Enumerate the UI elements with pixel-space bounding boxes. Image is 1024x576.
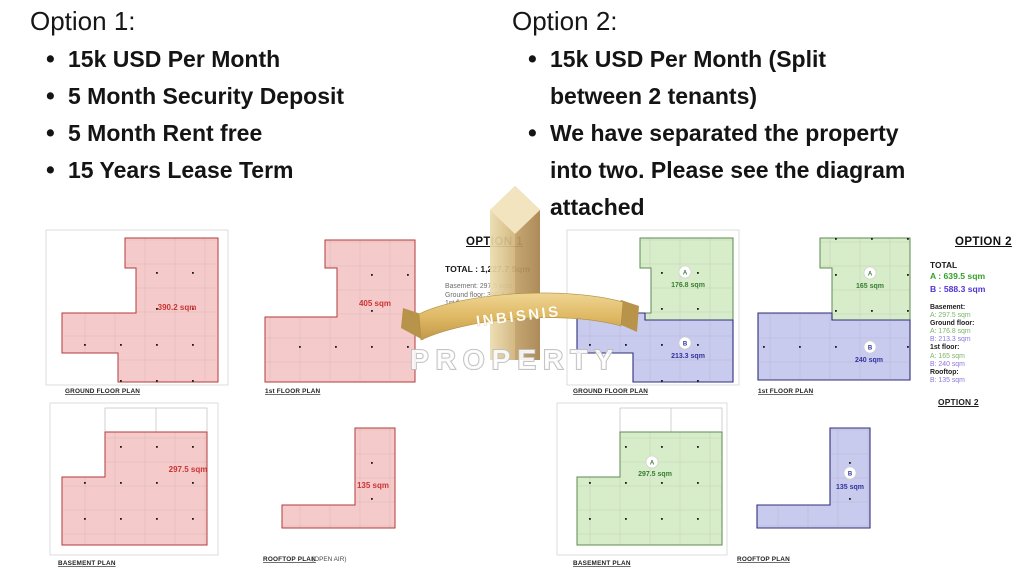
summary-line: A: 165 sqm bbox=[930, 353, 1024, 361]
bullet-dot: • bbox=[46, 115, 68, 152]
column-dots bbox=[758, 238, 910, 380]
bullet-text: 15 Years Lease Term bbox=[68, 152, 294, 189]
summary-option2-lines: Basement: A: 297.5 sqm Ground floor: A: … bbox=[930, 304, 1024, 385]
option2-footer-label: OPTION 2 bbox=[938, 397, 979, 407]
summary-line: 1st floor: bbox=[930, 344, 1024, 352]
bullet-item: • 5 Month Rent free bbox=[46, 115, 344, 152]
unit-letter: B bbox=[683, 341, 688, 347]
bullet-dot: • bbox=[528, 41, 550, 78]
plan-caption: GROUND FLOOR PLAN bbox=[573, 388, 648, 395]
plan-caption: ROOFTOP PLAN bbox=[263, 556, 316, 563]
column-dots bbox=[577, 432, 722, 545]
plan-option2-rooftop: B 135 sqm ROOFTOP PLAN bbox=[733, 418, 933, 570]
column-dots bbox=[265, 240, 415, 382]
summary-option2-total-label: TOTAL bbox=[930, 260, 1024, 270]
bullet-item: • 15k USD Per Month (Split between 2 ten… bbox=[528, 41, 905, 115]
bullet-text: 5 Month Security Deposit bbox=[68, 78, 344, 115]
summary-line: A: 176.8 sqm bbox=[930, 328, 1024, 336]
plan-option2-basement: A 297.5 sqm BASEMENT PLAN bbox=[545, 402, 760, 572]
plan-caption: BASEMENT PLAN bbox=[58, 560, 116, 567]
bullet-text: 15k USD Per Month bbox=[68, 41, 280, 78]
column-dots bbox=[62, 432, 207, 545]
plan-caption-note: (OPEN AIR) bbox=[312, 556, 346, 563]
area-label: 176.8 sqm bbox=[671, 282, 705, 289]
bullet-dot: • bbox=[528, 115, 550, 152]
unit-letter: B bbox=[868, 345, 873, 351]
summary-option2: OPTION 2 TOTAL A : 639.5 sqm B : 588.3 s… bbox=[930, 236, 1024, 385]
plan-caption: GROUND FLOOR PLAN bbox=[65, 388, 140, 395]
summary-line: Basement: bbox=[930, 304, 1024, 312]
plan-caption: BASEMENT PLAN bbox=[573, 560, 631, 567]
watermark-logo: INBISNIS PROPERTY bbox=[395, 172, 650, 382]
option2-heading: Option 2: bbox=[512, 6, 618, 37]
summary-line: Ground floor: bbox=[930, 320, 1024, 328]
area-label: 165 sqm bbox=[856, 283, 884, 290]
option1-heading: Option 1: bbox=[30, 6, 136, 37]
unit-letter: A bbox=[650, 460, 655, 466]
area-label: 297.5 sqm bbox=[169, 465, 208, 474]
logo-column-icon bbox=[490, 186, 540, 360]
plan-caption: 1st FLOOR PLAN bbox=[758, 388, 814, 395]
area-label: 390.2 sqm bbox=[158, 303, 197, 312]
bullet-item: • 5 Month Security Deposit bbox=[46, 78, 344, 115]
option1-bullet-list: • 15k USD Per Month • 5 Month Security D… bbox=[46, 41, 344, 189]
plan-caption: ROOFTOP PLAN bbox=[737, 556, 790, 563]
bullet-dot: • bbox=[46, 78, 68, 115]
plan-option1-basement: 297.5 sqm BASEMENT PLAN bbox=[40, 402, 255, 572]
bullet-item: • 15k USD Per Month bbox=[46, 41, 344, 78]
summary-line: B: 135 sqm bbox=[930, 377, 1024, 385]
area-label: 240 sqm bbox=[855, 357, 883, 364]
bullet-text: 15k USD Per Month (Split bbox=[550, 41, 826, 78]
bullet-dot: • bbox=[46, 41, 68, 78]
bullet-item: • 15 Years Lease Term bbox=[46, 152, 344, 189]
area-label: 135 sqm bbox=[836, 484, 864, 491]
unit-letter: A bbox=[683, 270, 688, 276]
plan-option1-rooftop: 135 sqm ROOFTOP PLAN (OPEN AIR) bbox=[255, 418, 455, 570]
column-dots bbox=[282, 428, 395, 528]
area-label: 213.3 sqm bbox=[671, 353, 705, 360]
summary-line: Rooftop: bbox=[930, 369, 1024, 377]
bullet-text: We have separated the property bbox=[550, 115, 905, 152]
summary-option2-title: OPTION 2 bbox=[955, 236, 1024, 248]
summary-total-a: A : 639.5 sqm bbox=[930, 270, 1024, 283]
summary-line: A: 297.5 sqm bbox=[930, 312, 1024, 320]
area-label: 297.5 sqm bbox=[638, 471, 672, 478]
unit-letter: A bbox=[868, 271, 873, 277]
summary-total-b: B : 588.3 sqm bbox=[930, 283, 1024, 296]
area-label: 405 sqm bbox=[359, 299, 391, 308]
bullet-text: 5 Month Rent free bbox=[68, 115, 262, 152]
area-label: 135 sqm bbox=[357, 481, 389, 490]
summary-line: B: 240 sqm bbox=[930, 361, 1024, 369]
summary-line: B: 213.3 sqm bbox=[930, 336, 1024, 344]
unit-letter: B bbox=[848, 471, 853, 477]
plan-option1-ground-floor: 390.2 sqm GROUND FLOOR PLAN bbox=[40, 228, 255, 400]
plan-caption: 1st FLOOR PLAN bbox=[265, 388, 321, 395]
bullet-text: between 2 tenants) bbox=[550, 78, 826, 115]
bullet-dot: • bbox=[46, 152, 68, 189]
brand-subtext: PROPERTY bbox=[410, 344, 620, 375]
plan-option2-first-floor: A 165 sqm B 240 sqm 1st FLOOR PLAN bbox=[755, 230, 935, 400]
